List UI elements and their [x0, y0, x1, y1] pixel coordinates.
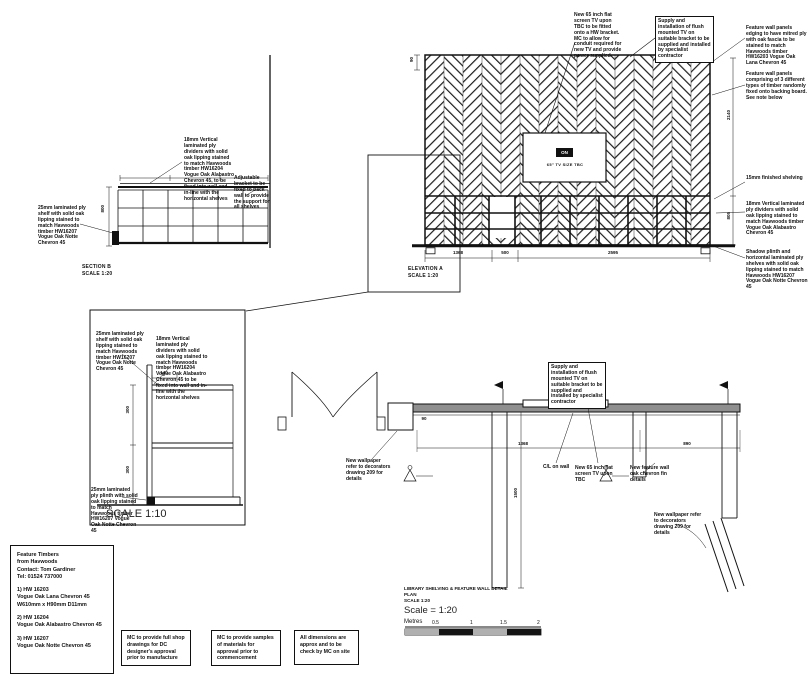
elevation-right-note-3: 15mm finished shelving: [746, 176, 808, 182]
feature-timbers-title: Feature Timbers: [17, 552, 109, 559]
plan-dim-wall: 1500: [513, 488, 518, 498]
sectionb-height-dim: 800: [100, 205, 105, 213]
timber-item-1-size: W610mm x H90mm D11mm: [17, 602, 109, 609]
drawing-sheet: 18mm Vertical laminated ply dividers wit…: [0, 0, 812, 676]
plan-dim-2: 890: [675, 441, 699, 446]
feature-timbers-tel: Tel: 01524 737000: [17, 574, 109, 581]
plan-fins-note: New feature wall oak chevron fin details: [630, 466, 678, 484]
detail-dim-mid: 300: [125, 406, 130, 414]
sectionb-scale: SCALE 1:20: [82, 271, 112, 277]
elevation-right-note-2: Feature wall panels comprising of 3 diff…: [746, 72, 808, 101]
timber-item-3-ref: 3) HW 16207: [17, 636, 109, 643]
timber-item-3-name: Vogue Oak Notte Chevron 45: [17, 643, 109, 650]
scalebar-tick-15: 1.5: [500, 620, 507, 626]
scalebar-tick-1: 1: [470, 620, 473, 626]
plan-scale-small: SCALE 1:20: [404, 598, 430, 603]
elevation-right-note-1: Feature wall panels edging to have mitre…: [746, 26, 808, 67]
detail-dim-top: 140: [155, 370, 173, 375]
scale-bar: [405, 627, 541, 635]
feature-timbers-supplier: from Havwoods: [17, 559, 109, 566]
detail-shelf-note: 25mm laminated ply shelf with solid oak …: [96, 332, 144, 373]
elevation-dim-left-top: 90: [409, 57, 414, 62]
sectionb-ply-shelf-note: 25mm laminated ply shelf with solid oak …: [38, 206, 92, 247]
timber-item-1-ref: 1) HW 16203: [17, 587, 109, 594]
plan-tv-note: New 65 inch flat screen TV upon TBC: [575, 466, 619, 484]
feature-timbers-contact: Contact: Tom Gardiner: [17, 567, 109, 574]
plan-title: LIBRARY SHELVING & FEATURE WALL DETAIL: [404, 586, 508, 591]
scalebar-tick-05: 0.5: [432, 620, 439, 626]
elevation-supply-note-box: Supply and installation of flush mounted…: [655, 16, 714, 63]
scalebar-metres-label: Metres: [404, 619, 422, 625]
plan-dim-small: 90: [418, 416, 430, 421]
plan-dim-1: 1368: [508, 441, 538, 446]
section-b-linework: [80, 55, 270, 248]
elevation-scale: SCALE 1:20: [408, 273, 438, 279]
elevation-title: ELEVATION A: [408, 266, 443, 272]
elevation-right-note-4: 18mm Vertical laminated ply dividers wit…: [746, 202, 808, 237]
elevation-dim-right-upper: 2140: [726, 110, 731, 120]
elevation-dim-right-lower: 805: [726, 212, 731, 220]
note-dimensions: All dimensions are approx and to be chec…: [294, 630, 359, 665]
sectionb-bracket-note: Adjustable bracket to be fixed to back w…: [234, 176, 270, 211]
feature-timbers-box: Feature Timbers from Havwoods Contact: T…: [10, 545, 114, 674]
elevation-right-note-5: Shadow plinth and horizontal laminated p…: [746, 250, 808, 291]
scalebar-tick-2: 2: [537, 620, 540, 626]
sectionb-title: SECTION B: [82, 264, 111, 270]
elevation-dim-bottom-3: 2595: [598, 250, 628, 255]
plan-supply-note-box: Supply and installation of flush mounted…: [548, 362, 606, 409]
plan-title-2: PLAN: [404, 592, 417, 597]
timber-item-1-name: Vogue Oak Lana Chevron 45: [17, 594, 109, 601]
detail-scale-label: SCALE 1:10: [106, 508, 167, 520]
elevation-dim-bottom-2: 500: [494, 250, 516, 255]
detail-dim-low: 300: [125, 466, 130, 474]
tv-logo-badge: ON: [556, 148, 573, 157]
timber-item-2-ref: 2) HW 16204: [17, 615, 109, 622]
plan-scale-big: Scale = 1:20: [404, 605, 457, 616]
tv-size-caption: 65" TV SIZE TBC: [530, 162, 600, 167]
plan-wallpaper-note-2: New wallpaper refer to decorators drawin…: [654, 513, 702, 537]
timber-item-2-name: Vogue Oak Alabastro Chevron 45: [17, 622, 109, 629]
note-shop-drawings: MC to provide full shop drawings for DC …: [121, 630, 191, 666]
note-samples: MC to provide samples of materials for a…: [211, 630, 281, 666]
elevation-dim-bottom-1: 1368: [443, 250, 473, 255]
elevation-tv-note: New 65 inch flat screen TV upon TBC to b…: [574, 13, 622, 60]
plan-wallpaper-note-1: New wallpaper refer to decorators drawin…: [346, 459, 392, 483]
plan-centreline-note: C/L on wall: [543, 465, 573, 471]
sectionb-vertical-divider-note: 18mm Vertical laminated ply dividers wit…: [184, 138, 234, 203]
